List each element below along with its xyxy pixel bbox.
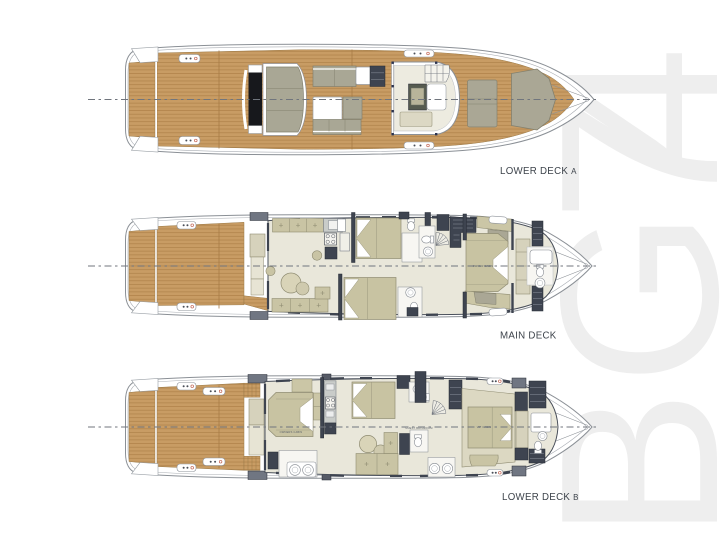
svg-text:MAIN DECK: MAIN DECK: [500, 331, 557, 342]
svg-text:LOWER DECK B: LOWER DECK B: [502, 492, 579, 503]
svg-text:LOWER DECK A: LOWER DECK A: [500, 166, 577, 177]
svg-text:OWNERS CABIN: OWNERS CABIN: [280, 430, 303, 434]
